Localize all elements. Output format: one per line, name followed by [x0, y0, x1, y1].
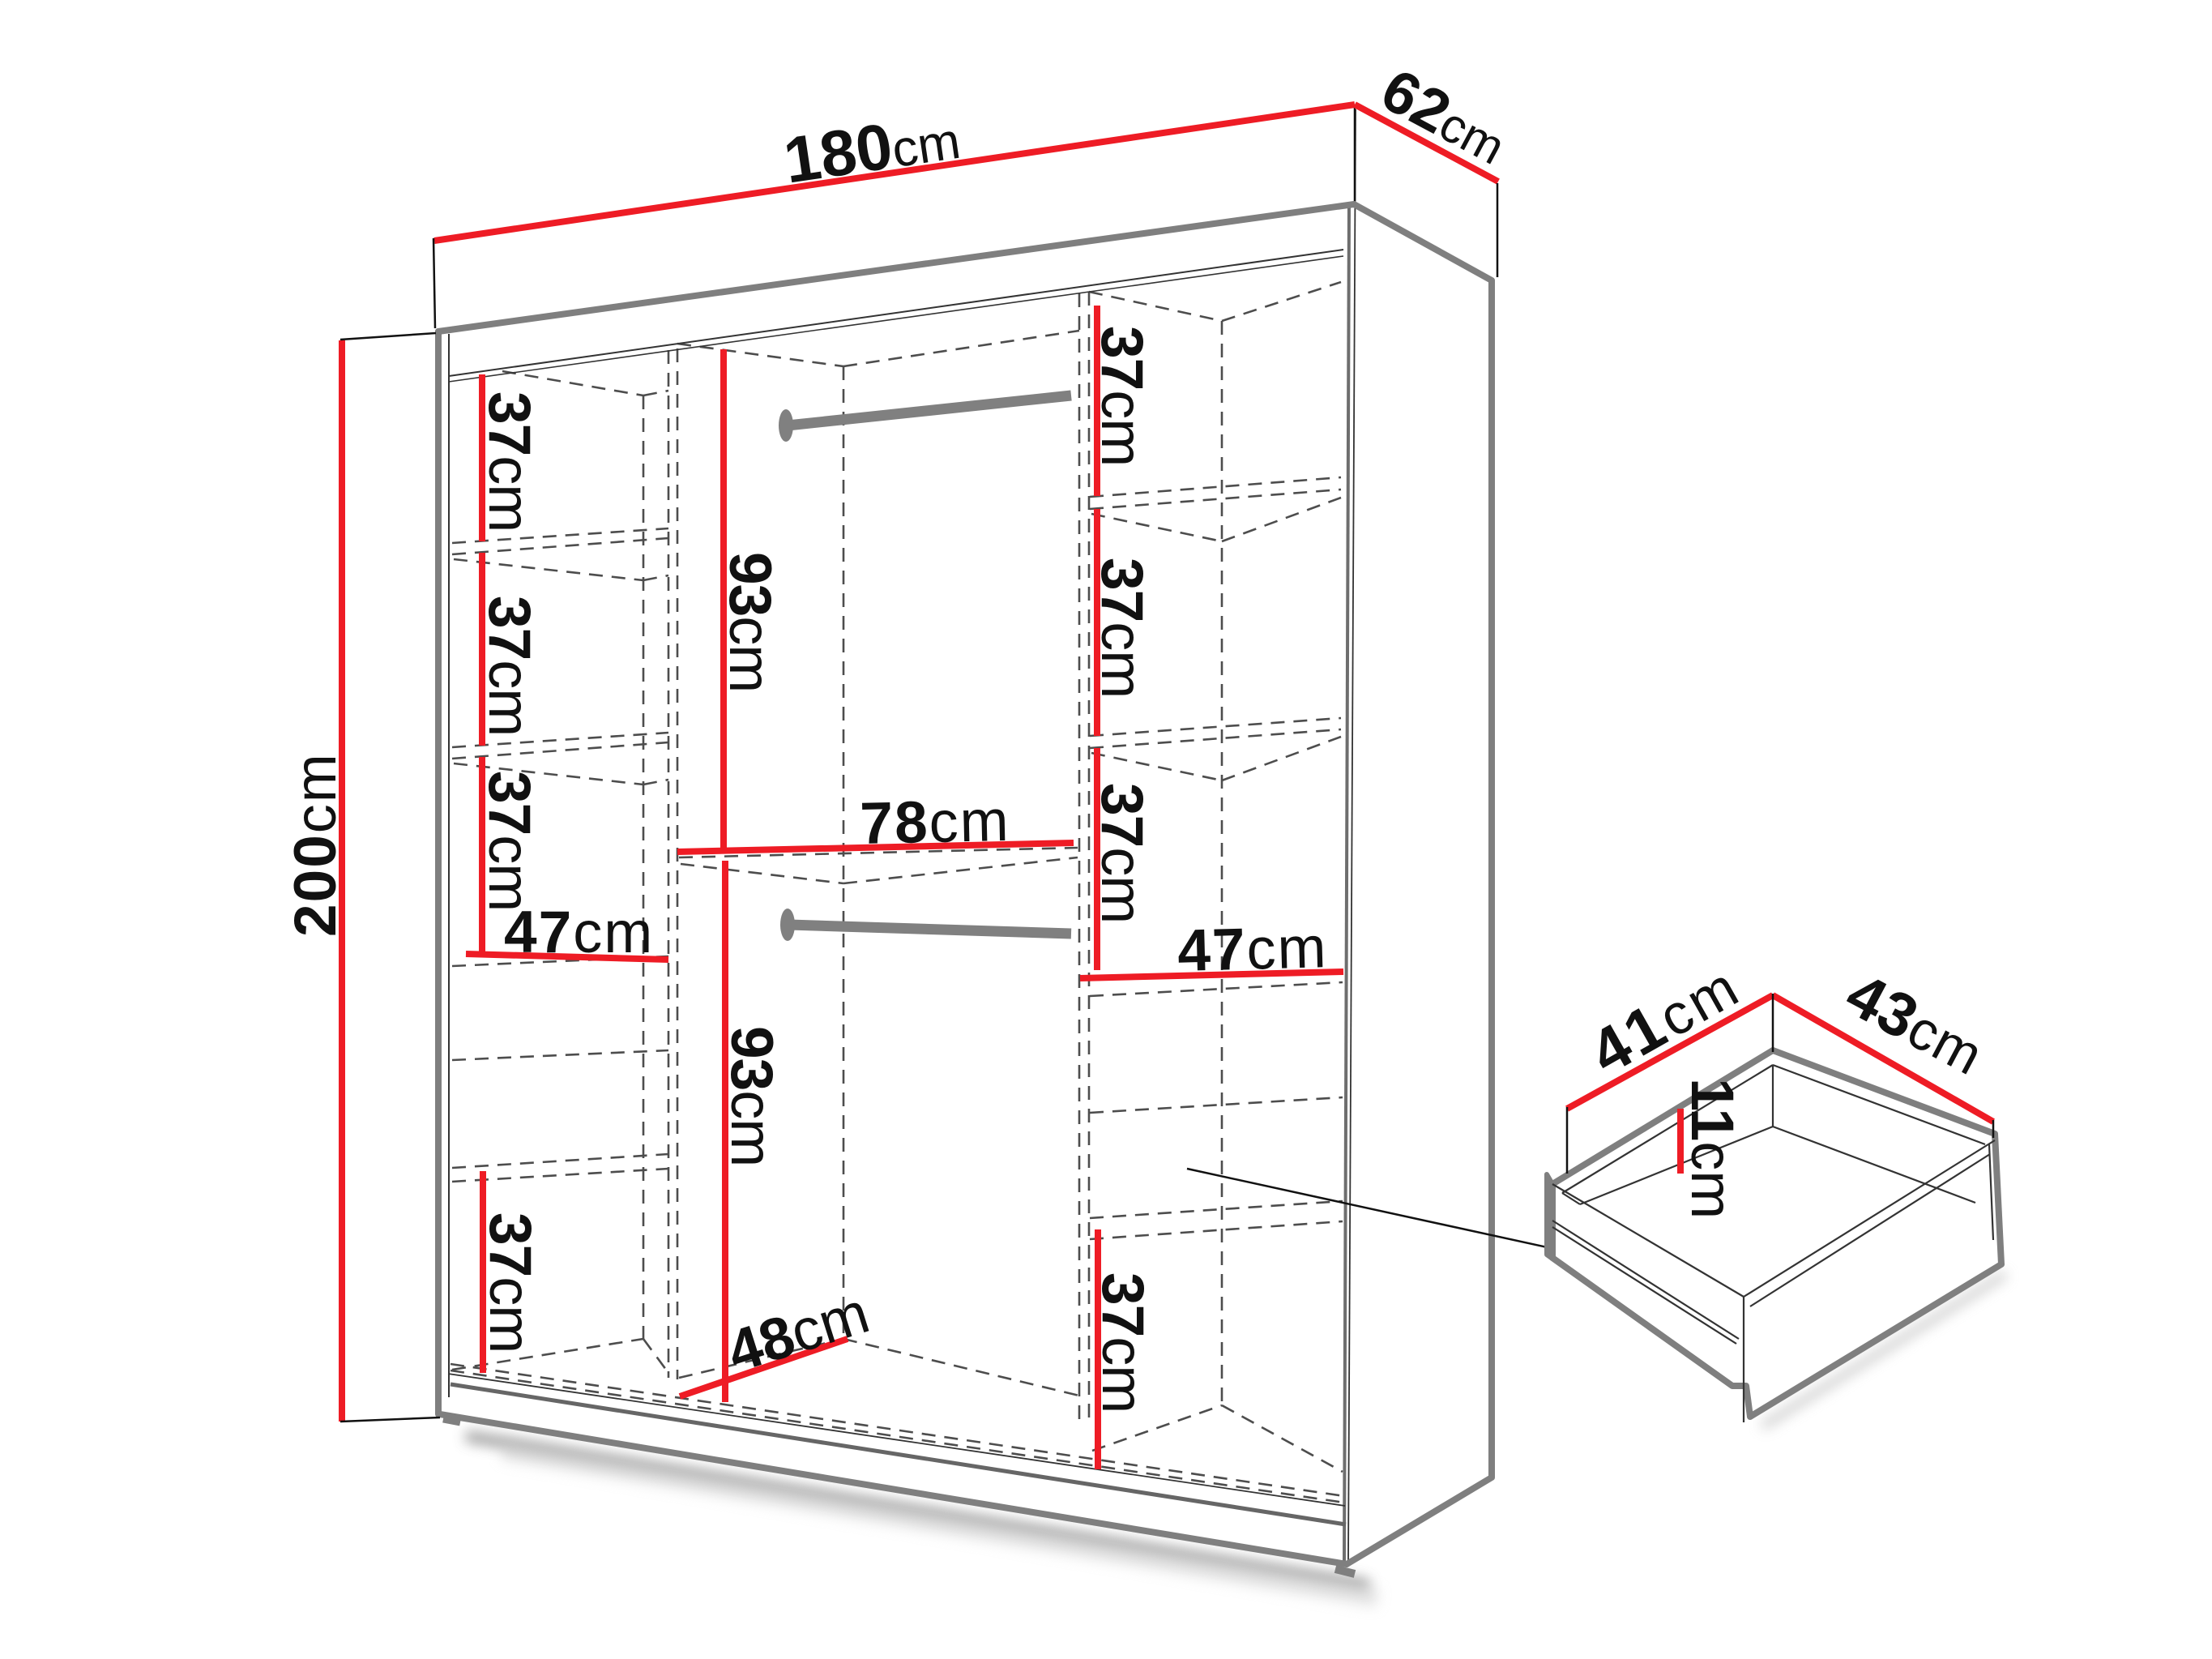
svg-text:93cm: 93cm	[717, 552, 783, 692]
svg-text:200cm: 200cm	[283, 752, 348, 937]
svg-text:37cm: 37cm	[476, 596, 542, 736]
svg-text:37cm: 37cm	[1090, 1272, 1155, 1413]
svg-text:37cm: 37cm	[1089, 326, 1155, 466]
svg-text:37cm: 37cm	[1089, 558, 1155, 698]
svg-text:93cm: 93cm	[719, 1026, 784, 1166]
svg-text:37cm: 37cm	[1089, 783, 1155, 923]
svg-text:78cm: 78cm	[860, 788, 1011, 857]
svg-text:47cm: 47cm	[1176, 914, 1328, 984]
svg-text:37cm: 37cm	[477, 1212, 543, 1353]
svg-text:37cm: 37cm	[476, 771, 542, 911]
svg-text:37cm: 37cm	[476, 391, 542, 532]
svg-text:11cm: 11cm	[1679, 1078, 1746, 1219]
svg-text:47cm: 47cm	[504, 900, 654, 965]
